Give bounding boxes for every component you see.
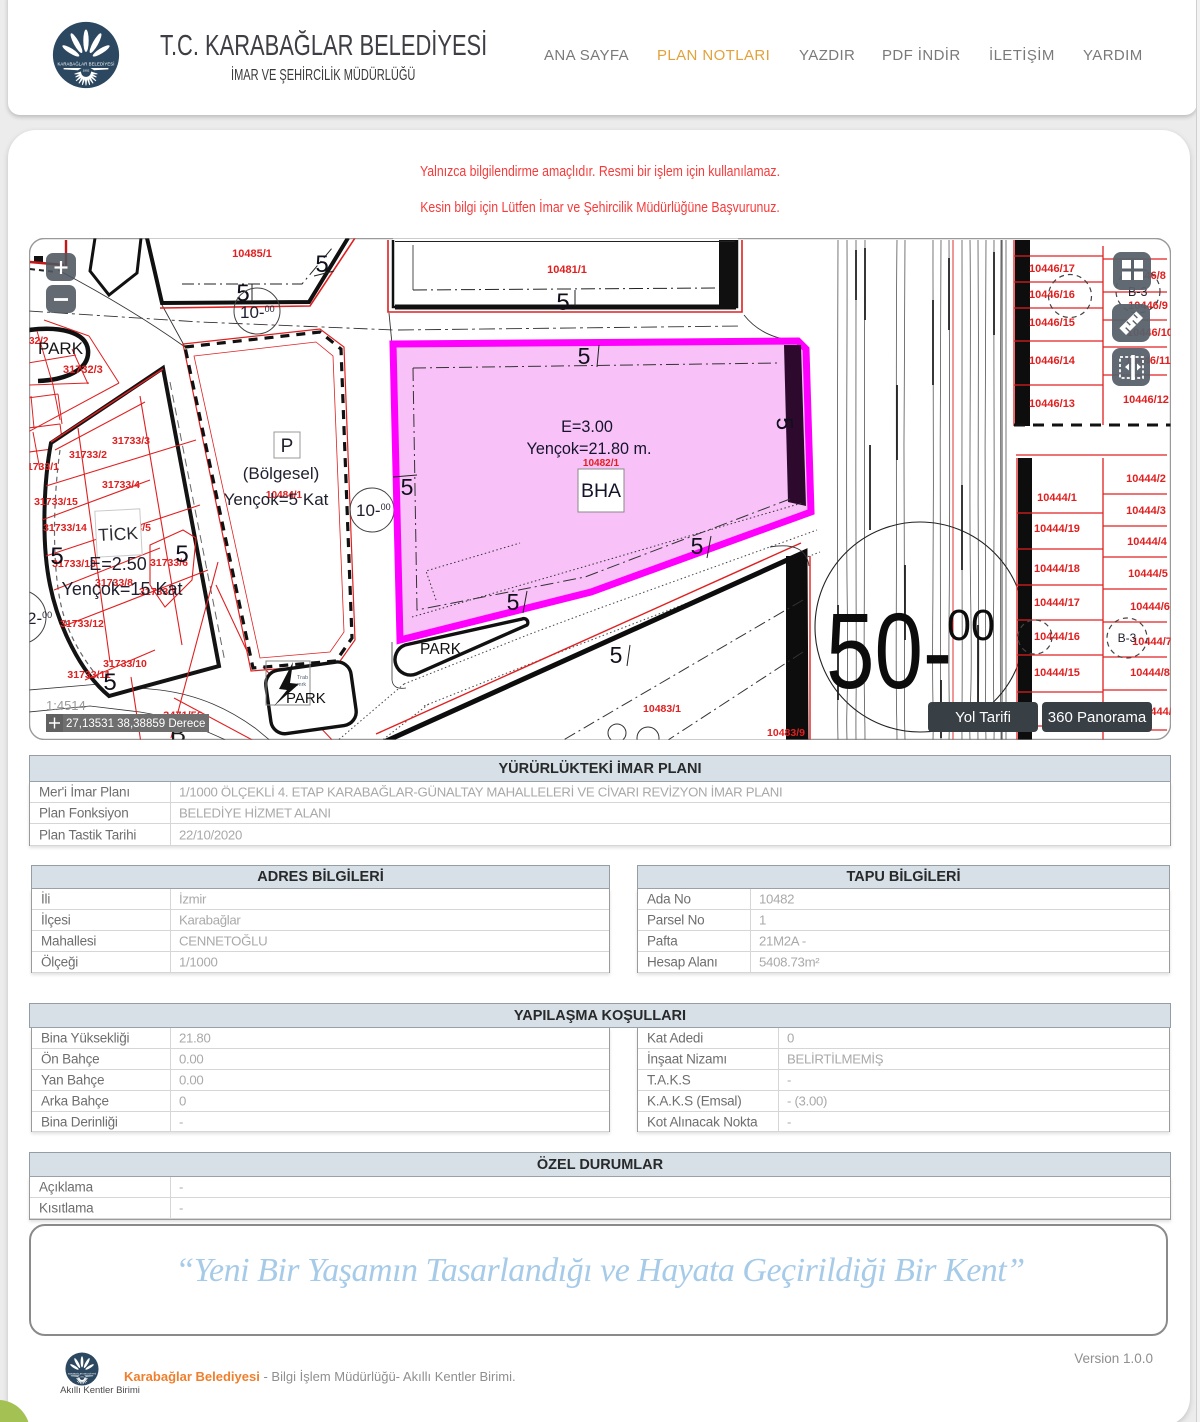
svg-text:1:4514: 1:4514 — [46, 698, 86, 713]
svg-text:31733/4: 31733/4 — [102, 479, 140, 491]
svg-text:31733/2: 31733/2 — [69, 449, 107, 461]
svg-text:10444/3: 10444/3 — [1126, 505, 1166, 517]
svg-text:Yol Tarifi: Yol Tarifi — [955, 709, 1011, 726]
svg-text:PARK: PARK — [286, 690, 326, 707]
svg-text:Trab: Trab — [297, 675, 308, 681]
svg-text:P: P — [281, 436, 294, 457]
svg-text:10444/5: 10444/5 — [1128, 568, 1168, 580]
svg-text:KARABAĞLAR BELEDİYESİ: KARABAĞLAR BELEDİYESİ — [57, 62, 114, 67]
svg-text:10444/17: 10444/17 — [1034, 597, 1080, 609]
svg-text:10444/18: 10444/18 — [1034, 563, 1080, 575]
svg-text:E=3.00: E=3.00 — [561, 418, 613, 436]
svg-text:10444/2: 10444/2 — [1126, 473, 1166, 485]
svg-text:Yençok=21.80 m.: Yençok=21.80 m. — [527, 440, 652, 458]
svg-text:31733/3: 31733/3 — [112, 435, 150, 447]
svg-text:10444/1: 10444/1 — [1037, 492, 1077, 504]
svg-text:10444/6: 10444/6 — [1130, 601, 1170, 613]
svg-text:10444/16: 10444/16 — [1034, 631, 1080, 643]
svg-text:5: 5 — [507, 589, 520, 615]
svg-text:(Bölgesel): (Bölgesel) — [243, 464, 320, 483]
svg-text:10444/4: 10444/4 — [1127, 536, 1168, 548]
svg-text:31733/14: 31733/14 — [43, 522, 87, 534]
svg-text:mrk: mrk — [297, 682, 306, 688]
svg-text:27,13531 38,38859 Derece: 27,13531 38,38859 Derece — [66, 718, 205, 730]
svg-text:10483/9: 10483/9 — [767, 727, 805, 739]
svg-text:31733/15: 31733/15 — [34, 496, 78, 508]
svg-text:5: 5 — [401, 474, 414, 500]
svg-text:10482/1: 10482/1 — [583, 458, 620, 469]
svg-text:10446/15: 10446/15 — [1029, 317, 1075, 329]
svg-text:5: 5 — [103, 669, 116, 696]
svg-text:10446/12: 10446/12 — [1123, 394, 1169, 406]
svg-text:10481/1: 10481/1 — [547, 264, 587, 276]
svg-text:10444/15: 10444/15 — [1034, 667, 1080, 679]
svg-text:5: 5 — [772, 417, 799, 431]
svg-text:Yençok=5 Kat: Yençok=5 Kat — [224, 490, 329, 509]
svg-text:5: 5 — [175, 541, 188, 568]
svg-text:5: 5 — [691, 533, 704, 559]
svg-text:10483/1: 10483/1 — [643, 703, 681, 715]
svg-text:10446/17: 10446/17 — [1029, 263, 1075, 275]
svg-text:Yençok=15 Kat: Yençok=15 Kat — [62, 579, 183, 599]
svg-text:1992: 1992 — [83, 69, 90, 73]
svg-text:50-: 50- — [826, 590, 952, 711]
svg-text:5: 5 — [50, 543, 63, 570]
svg-text:10446/13: 10446/13 — [1029, 398, 1075, 410]
svg-text:31732/3: 31732/3 — [63, 364, 103, 376]
svg-text:10444/8: 10444/8 — [1130, 667, 1170, 679]
svg-text:10446/16: 10446/16 — [1029, 289, 1075, 301]
svg-text:360 Panorama: 360 Panorama — [1048, 709, 1147, 726]
svg-text:00: 00 — [947, 601, 995, 650]
svg-text:5: 5 — [610, 642, 623, 668]
svg-text:TİCK: TİCK — [98, 523, 139, 545]
svg-text:10446/14: 10446/14 — [1029, 355, 1076, 367]
svg-text:PARK: PARK — [420, 641, 462, 658]
svg-text:31733/12: 31733/12 — [60, 618, 104, 630]
svg-text:10485/1: 10485/1 — [232, 248, 272, 260]
svg-text:PARK: PARK — [38, 339, 84, 358]
svg-text:BHA: BHA — [581, 480, 621, 502]
svg-text:10444/19: 10444/19 — [1034, 523, 1080, 535]
svg-text:5: 5 — [556, 289, 569, 316]
svg-text:B-3: B-3 — [1118, 631, 1137, 645]
svg-text:10444/7: 10444/7 — [1132, 636, 1171, 648]
svg-text:E=2.50: E=2.50 — [89, 554, 147, 574]
svg-text:5: 5 — [578, 343, 591, 369]
svg-text:31733/1: 31733/1 — [29, 461, 59, 473]
